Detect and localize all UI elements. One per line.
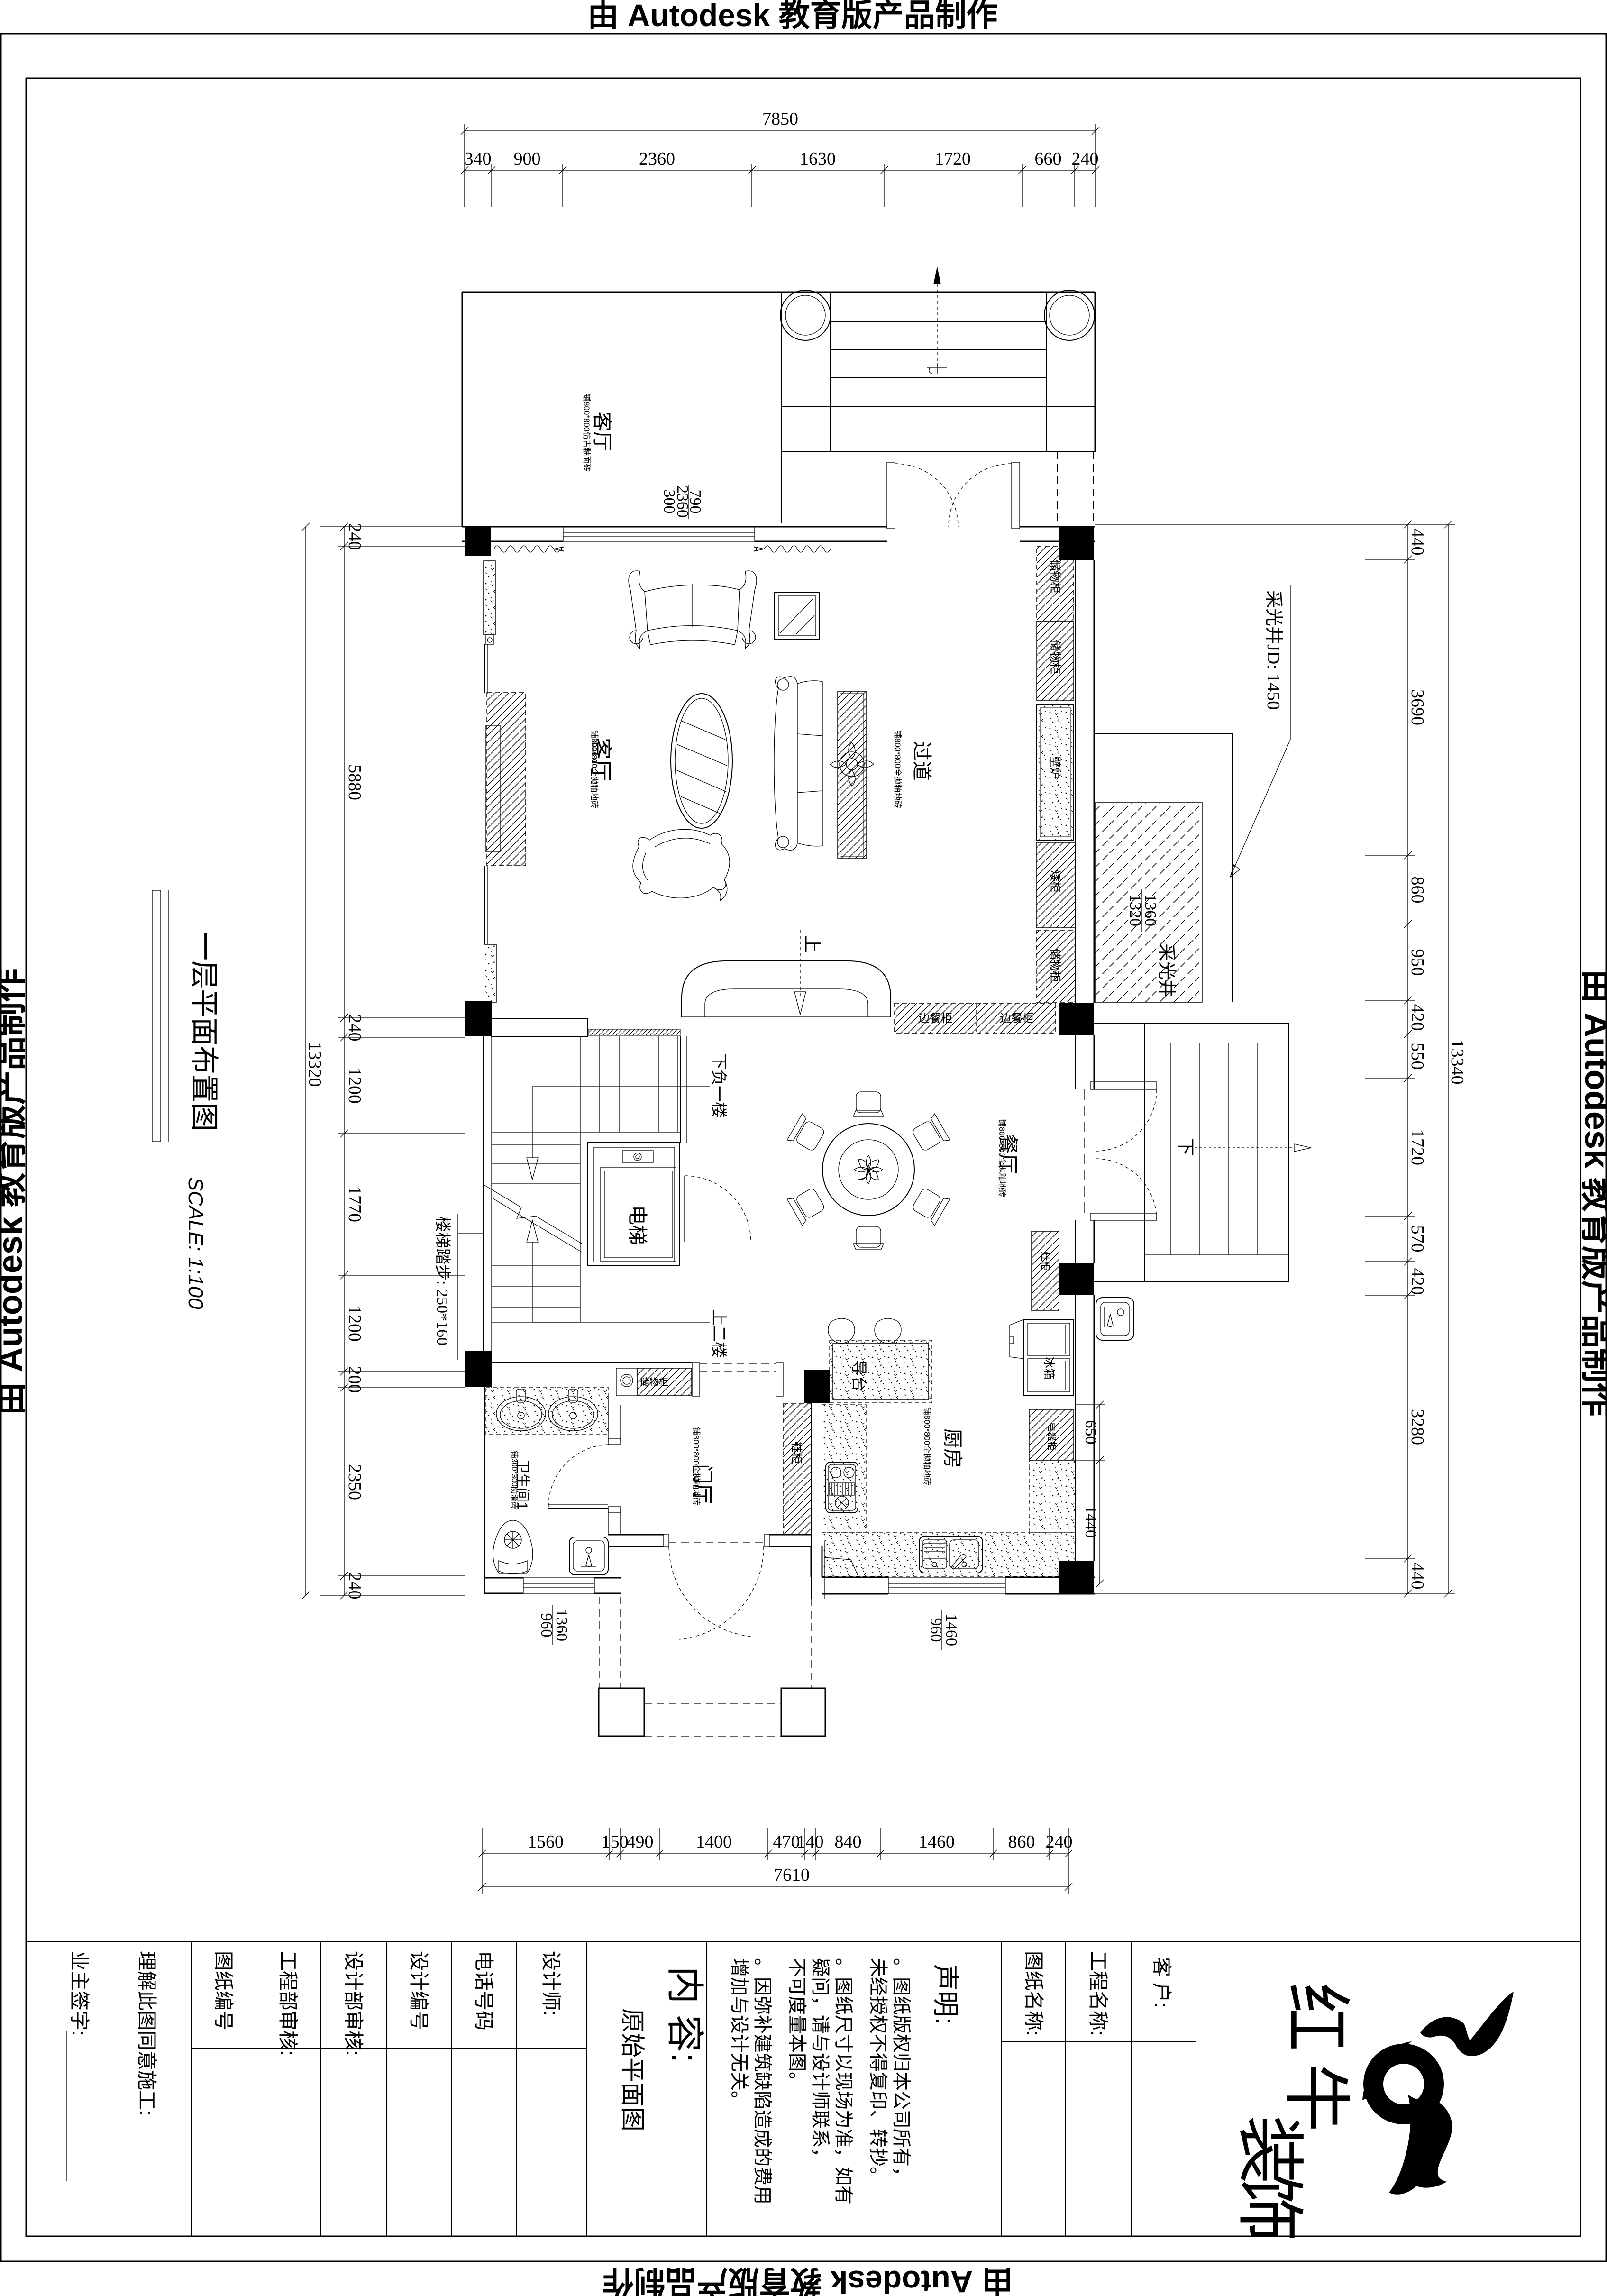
svg-text:采光井: 采光井: [1156, 943, 1176, 997]
svg-text:3280: 3280: [1407, 1409, 1427, 1445]
svg-text:一层平面布置图: 一层平面布置图: [188, 932, 220, 1131]
svg-text:1770: 1770: [345, 1186, 365, 1222]
svg-text:490: 490: [627, 1832, 654, 1852]
svg-text:下负一楼: 下负一楼: [710, 1053, 728, 1118]
svg-text:铺800*800全抛釉地砖: 铺800*800全抛釉地砖: [692, 1427, 701, 1505]
svg-text:900: 900: [514, 149, 541, 169]
svg-text:铺800*800仿古釉面砖: 铺800*800仿古釉面砖: [582, 393, 591, 472]
svg-text:860: 860: [1008, 1832, 1035, 1852]
svg-text:950: 950: [1407, 949, 1427, 976]
svg-text:440: 440: [1407, 1563, 1427, 1590]
svg-text:设计部审核:: 设计部审核:: [342, 1951, 365, 2056]
svg-text:960: 960: [927, 1618, 945, 1642]
svg-text:。图纸版权归本公司所有，: 。图纸版权归本公司所有，: [891, 1958, 912, 2186]
svg-text:图纸名称:: 图纸名称:: [1023, 1951, 1045, 2036]
svg-text:冰箱: 冰箱: [1042, 1357, 1055, 1380]
svg-text:业主签字:: 业主签字:: [68, 1951, 91, 2036]
svg-text:储物柜: 储物柜: [1049, 640, 1061, 674]
svg-text:工程部审核:: 工程部审核:: [277, 1951, 299, 2056]
svg-text:420: 420: [1407, 1004, 1427, 1031]
svg-text:矮柜: 矮柜: [1049, 870, 1061, 893]
svg-text:13320: 13320: [305, 1042, 325, 1087]
svg-text:设计师:: 设计师:: [540, 1951, 562, 2016]
svg-text:440: 440: [1407, 529, 1427, 556]
svg-text:13340: 13340: [1447, 1040, 1467, 1085]
svg-text:1200: 1200: [345, 1068, 365, 1104]
svg-text:壁炉: 壁炉: [1049, 756, 1061, 779]
svg-text:1630: 1630: [800, 149, 836, 169]
svg-text:铺800*800全抛釉地砖: 铺800*800全抛釉地砖: [997, 1119, 1006, 1197]
svg-text:140: 140: [797, 1832, 824, 1852]
svg-text:原始平面图: 原始平面图: [618, 2008, 646, 2131]
svg-text:客厅: 客厅: [591, 412, 613, 451]
svg-text:650: 650: [1082, 1420, 1099, 1445]
svg-text:150: 150: [602, 1832, 629, 1852]
svg-text:上二楼: 上二楼: [710, 1309, 728, 1358]
svg-text:楼梯踏步: 250*160: 楼梯踏步: 250*160: [433, 1216, 451, 1345]
svg-text:5880: 5880: [345, 764, 365, 800]
svg-text:灶柜: 灶柜: [1040, 1252, 1050, 1271]
svg-text:550: 550: [1407, 1043, 1427, 1070]
svg-text:储物柜: 储物柜: [1049, 559, 1061, 594]
svg-text:声明:: 声明:: [931, 1964, 960, 2025]
svg-text:由 Autodesk 教育版产品制作: 由 Autodesk 教育版产品制作: [0, 968, 29, 1416]
svg-text:200: 200: [345, 1366, 365, 1393]
svg-text:1440: 1440: [1082, 1506, 1099, 1538]
svg-text:电梯: 电梯: [626, 1205, 648, 1245]
svg-text:边餐柜: 边餐柜: [918, 1012, 952, 1025]
svg-text:增加与设计无关。: 增加与设计无关。: [729, 1958, 749, 2110]
svg-text:铺800*800全抛釉地砖: 铺800*800全抛釉地砖: [922, 1407, 931, 1485]
svg-text:240: 240: [345, 1573, 365, 1600]
svg-text:。图纸尺寸以现场为准，如有: 。图纸尺寸以现场为准，如有: [833, 1958, 854, 2205]
svg-text:240: 240: [345, 523, 365, 550]
svg-text:由 Autodesk 教育版产品制作: 由 Autodesk 教育版产品制作: [587, 0, 997, 33]
svg-text:1460: 1460: [919, 1832, 955, 1852]
svg-text:过道: 过道: [911, 741, 933, 781]
svg-text:2360: 2360: [639, 149, 675, 169]
svg-text:由 Autodesk 教育版产品制作: 由 Autodesk 教育版产品制作: [603, 2264, 1013, 2296]
svg-text:1400: 1400: [696, 1832, 732, 1852]
svg-text:420: 420: [1407, 1268, 1427, 1295]
svg-text:上: 上: [802, 935, 822, 953]
svg-text:内 容:: 内 容:: [664, 1966, 706, 2063]
svg-text:7850: 7850: [762, 109, 798, 129]
svg-text:疑问，请与设计师联系，: 疑问，请与设计师联系，: [810, 1958, 831, 2167]
svg-text:铺800*800全抛釉地砖: 铺800*800全抛釉地砖: [590, 730, 599, 808]
svg-text:340: 340: [465, 149, 492, 169]
svg-text:1200: 1200: [345, 1306, 365, 1342]
svg-text:不可度量本图。: 不可度量本图。: [786, 1958, 807, 2091]
svg-text:饰: 饰: [1231, 2173, 1308, 2242]
svg-text:300: 300: [660, 490, 678, 514]
svg-text:边餐柜: 边餐柜: [1000, 1012, 1034, 1025]
svg-text:3690: 3690: [1407, 689, 1427, 725]
svg-text:470: 470: [773, 1832, 800, 1852]
svg-text:570: 570: [1407, 1226, 1427, 1253]
svg-text:由 Autodesk 教育版产品制作: 由 Autodesk 教育版产品制作: [1578, 969, 1607, 1417]
svg-text:1720: 1720: [1407, 1129, 1427, 1165]
svg-text:1720: 1720: [935, 149, 971, 169]
svg-text:理解此图同意施工:: 理解此图同意施工:: [136, 1951, 158, 2116]
svg-text:电器柜: 电器柜: [1046, 1422, 1057, 1451]
svg-text:铺800*800全抛釉地砖: 铺800*800全抛釉地砖: [893, 730, 902, 808]
svg-text:下: 下: [1175, 1138, 1195, 1156]
svg-text:未经授权不得复印、转抄。: 未经授权不得复印、转抄。: [867, 1958, 888, 2186]
svg-text:电话号码: 电话号码: [473, 1951, 495, 2031]
svg-text:客 户:: 客 户:: [1150, 1957, 1173, 2008]
svg-text:240: 240: [1046, 1832, 1073, 1852]
svg-text:7610: 7610: [774, 1865, 810, 1885]
svg-text:采光井JD: 1450: 采光井JD: 1450: [1263, 590, 1283, 710]
svg-text:SCALE: 1:100: SCALE: 1:100: [184, 1177, 207, 1309]
svg-text:鞋柜: 鞋柜: [790, 1441, 803, 1464]
svg-text:860: 860: [1407, 877, 1427, 904]
svg-text:厨房: 厨房: [941, 1428, 964, 1468]
svg-text:2350: 2350: [345, 1464, 365, 1500]
svg-text:1560: 1560: [528, 1832, 564, 1852]
svg-text:240: 240: [1072, 149, 1099, 169]
svg-text:储物柜: 储物柜: [1049, 948, 1061, 982]
svg-text:660: 660: [1035, 149, 1062, 169]
svg-text:红: 红: [1278, 1983, 1354, 2051]
svg-text:设计编号: 设计编号: [408, 1951, 430, 2031]
svg-text:840: 840: [835, 1832, 862, 1852]
svg-text:240: 240: [345, 1015, 365, 1042]
svg-text:储物柜: 储物柜: [640, 1377, 668, 1388]
svg-text:铺300*300防滑砖: 铺300*300防滑砖: [510, 1451, 519, 1509]
svg-text:导台: 导台: [849, 1360, 867, 1392]
svg-text:工程名称:: 工程名称:: [1087, 1951, 1109, 2036]
svg-text:。因弥补建筑缺陷造成的费用: 。因弥补建筑缺陷造成的费用: [752, 1958, 773, 2205]
svg-text:图纸编号: 图纸编号: [212, 1951, 235, 2031]
